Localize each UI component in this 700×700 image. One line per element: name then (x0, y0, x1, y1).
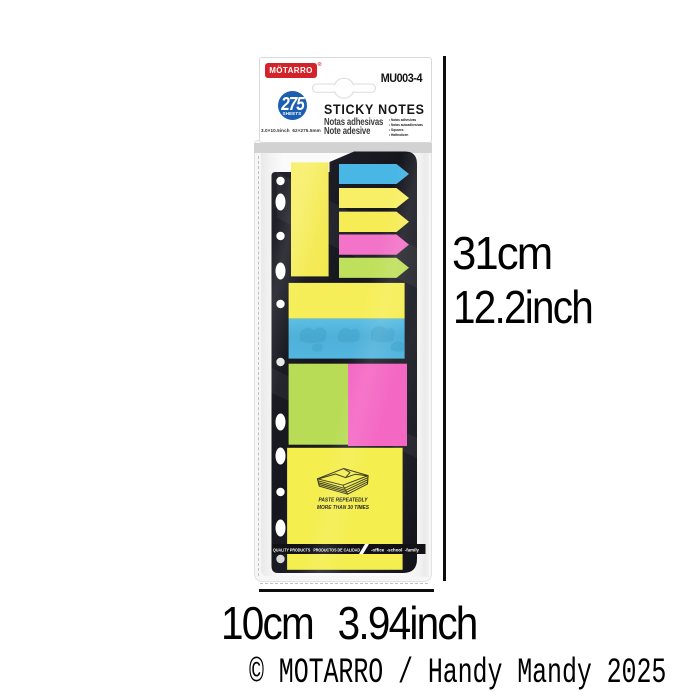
svg-text:MORE THAN 30 TIMES: MORE THAN 30 TIMES (317, 505, 369, 511)
svg-text:-office -school -family: -office -school -family (371, 547, 419, 552)
svg-text:PASTE REPEATEDLY: PASTE REPEATEDLY (319, 498, 369, 504)
svg-text:QUALITY PRODUCTS PRODUCTOS D: QUALITY PRODUCTS PRODUCTOS DE CALIDAD (273, 547, 361, 552)
